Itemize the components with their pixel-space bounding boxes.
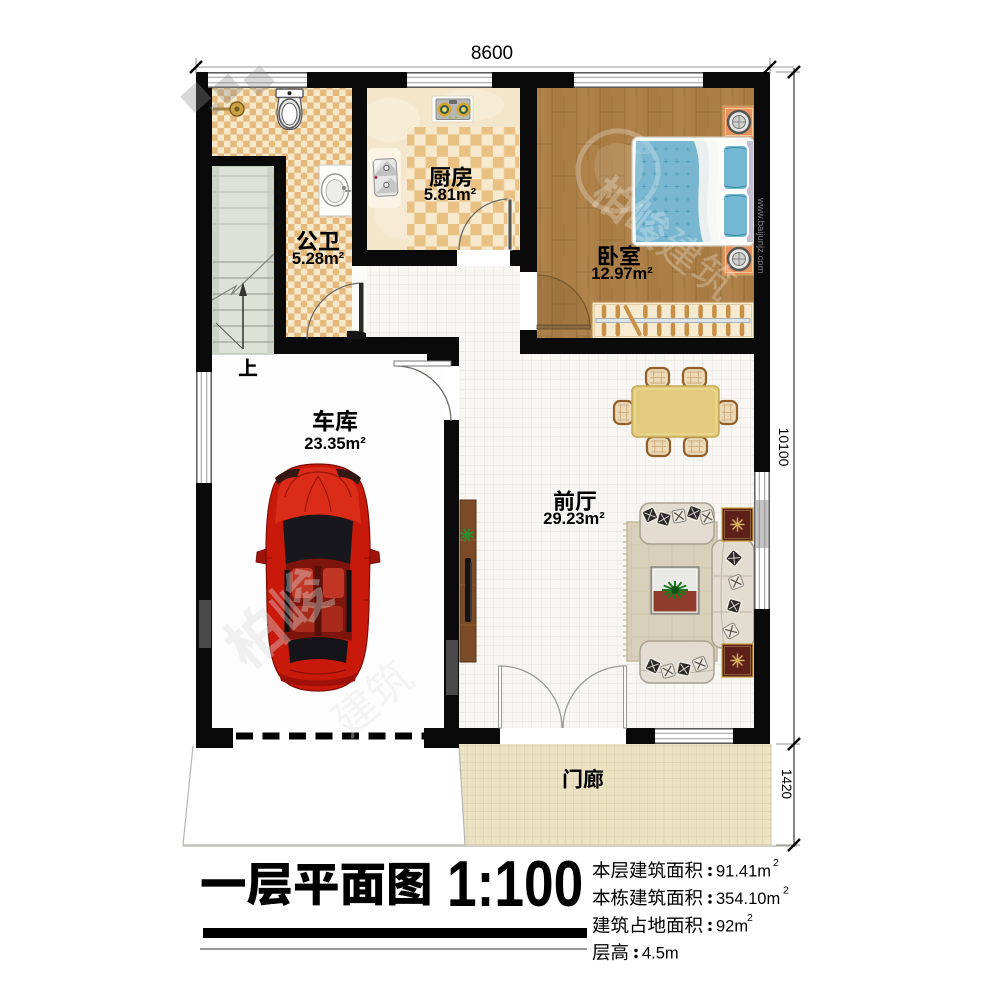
svg-text:29.23m²: 29.23m²: [543, 510, 605, 528]
svg-text:2: 2: [747, 912, 753, 924]
svg-text:2: 2: [783, 885, 789, 897]
svg-text:8600: 8600: [471, 43, 513, 64]
svg-text:1420: 1420: [779, 769, 794, 799]
svg-text:354.10m: 354.10m: [716, 890, 780, 908]
svg-text:5.81m²: 5.81m²: [424, 186, 477, 204]
svg-text:www.baijunjz.com: www.baijunjz.com: [755, 197, 766, 274]
svg-text:4.5m: 4.5m: [642, 945, 679, 963]
svg-text:1:100: 1:100: [447, 847, 583, 920]
svg-text:2: 2: [773, 857, 779, 869]
svg-text:5.28m²: 5.28m²: [292, 250, 345, 268]
svg-text:91.41m: 91.41m: [716, 863, 771, 881]
svg-text:92m: 92m: [716, 918, 748, 936]
svg-text:12.97m²: 12.97m²: [591, 265, 653, 283]
svg-text:10100: 10100: [776, 428, 792, 467]
svg-text:23.35m²: 23.35m²: [304, 435, 366, 453]
